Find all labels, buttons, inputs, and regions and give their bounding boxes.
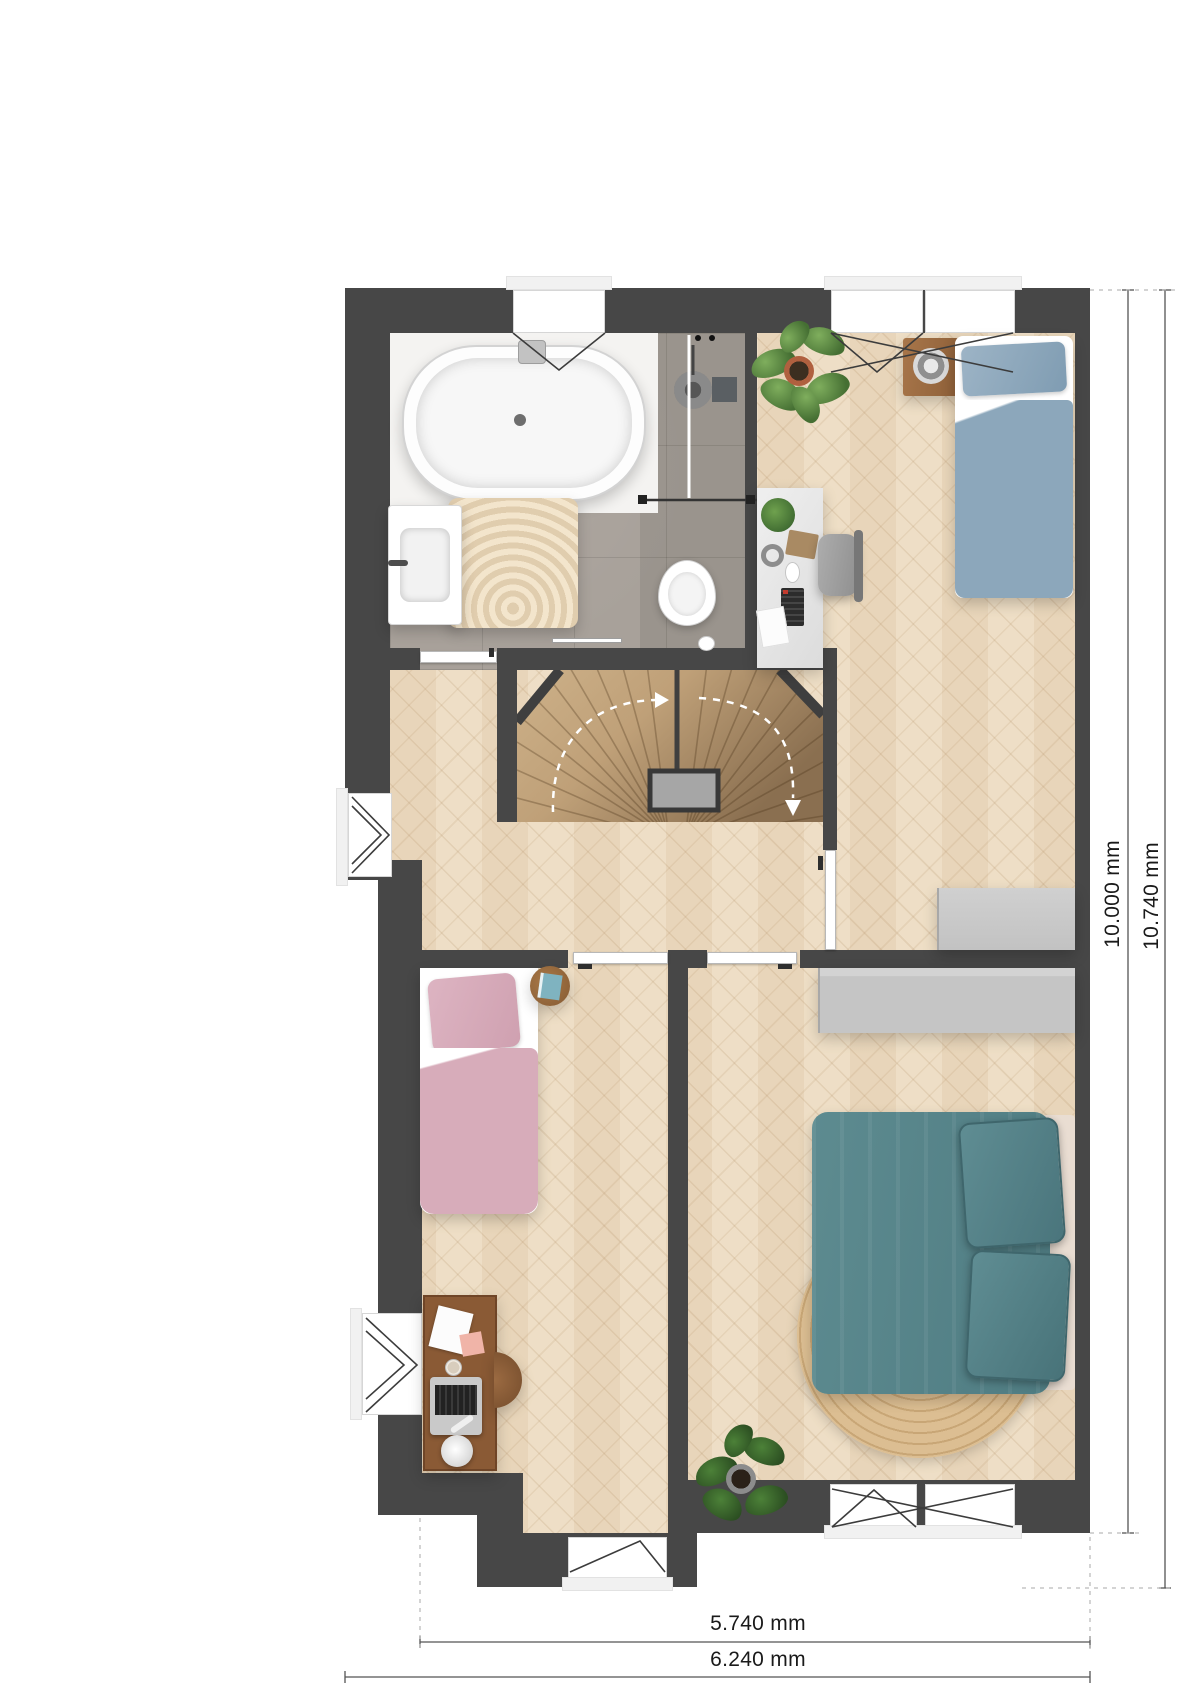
dimension-label-right-inner: 10.000 mm [1101,794,1125,994]
dimension-label-bottom-outer: 6.240 mm [658,1648,858,1672]
window-swing-icon [513,333,605,370]
annotation-overlay [0,0,1200,1697]
dimension-label-right-outer: 10.740 mm [1140,796,1164,996]
dimension-label-bottom-inner: 5.740 mm [658,1612,858,1636]
floor-plan: 10.000 mm 10.740 mm 5.740 mm 6.240 mm [0,0,1200,1697]
